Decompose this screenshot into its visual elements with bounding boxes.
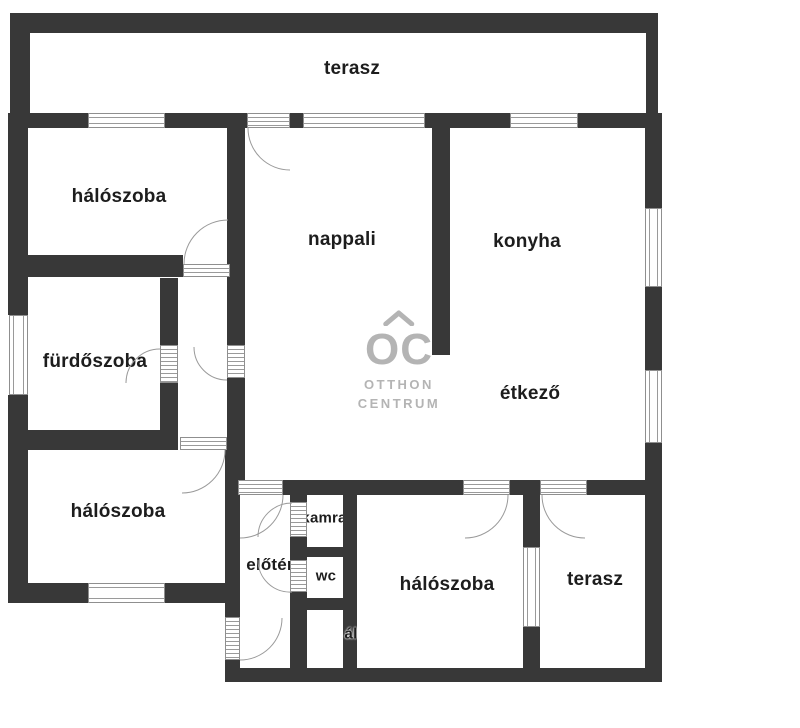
door-opening (238, 480, 283, 495)
room-label-terasz-top: terasz (324, 58, 380, 80)
door-opening (463, 480, 510, 495)
door-opening (183, 264, 230, 277)
wall (8, 113, 28, 315)
room-label-etkezo: étkező (500, 383, 560, 405)
wall (165, 113, 247, 128)
room-label-konyha: konyha (493, 231, 561, 253)
window (88, 113, 165, 128)
room-label-clipped: ál (345, 626, 358, 643)
door-opening (540, 480, 587, 495)
room-label-furdoszoba: fürdőszoba (43, 351, 147, 373)
window (510, 113, 578, 128)
wall (645, 287, 662, 370)
watermark-line1: OTTHON (358, 378, 441, 391)
door-opening (160, 345, 178, 383)
wall (523, 495, 540, 547)
wall (8, 395, 28, 603)
wall (578, 113, 662, 128)
wall (290, 547, 357, 557)
wall (227, 480, 238, 495)
wall (645, 128, 662, 208)
window (303, 113, 425, 128)
wall (646, 13, 658, 113)
otthon-centrum-watermark: OC OTTHON CENTRUM (358, 310, 441, 410)
window (645, 208, 662, 287)
watermark-logo-text: OC (358, 328, 441, 372)
door-opening (180, 437, 227, 450)
wall (290, 495, 307, 502)
floor-plan: terasz hálószoba nappali konyha fürdőszo… (0, 0, 800, 728)
wall (225, 668, 662, 682)
wall (523, 627, 540, 668)
room-label-eloter: előtér (246, 555, 294, 575)
door-opening (290, 560, 307, 592)
room-label-kamra: kamra (301, 510, 346, 527)
door-opening (225, 617, 240, 660)
room-label-haloszoba-left: hálószoba (71, 501, 166, 523)
window (9, 315, 28, 395)
door-opening (227, 345, 245, 378)
window (88, 583, 165, 603)
door-opening (247, 113, 290, 128)
wall (290, 113, 303, 128)
wall (425, 113, 510, 128)
room-label-nappali: nappali (308, 229, 376, 251)
wall (160, 278, 178, 345)
door-opening (290, 502, 307, 537)
wall (290, 598, 357, 610)
room-label-wc: wc (316, 568, 336, 585)
room-label-haloszoba-top: hálószoba (72, 186, 167, 208)
wall (10, 13, 30, 113)
wall (432, 128, 450, 355)
wall (8, 583, 88, 603)
wall (227, 128, 245, 345)
wall (510, 480, 540, 495)
wall (645, 443, 662, 682)
wall (28, 255, 183, 277)
room-label-terasz-bottom: terasz (567, 569, 623, 591)
wall (8, 430, 178, 450)
wall (10, 13, 658, 33)
window (645, 370, 662, 443)
roof-icon (382, 310, 416, 326)
watermark-line2: CENTRUM (358, 397, 441, 410)
wall (587, 480, 662, 495)
window (523, 547, 540, 627)
wall (225, 450, 240, 617)
room-label-haloszoba-bottom: hálószoba (400, 574, 495, 596)
wall (283, 480, 463, 495)
